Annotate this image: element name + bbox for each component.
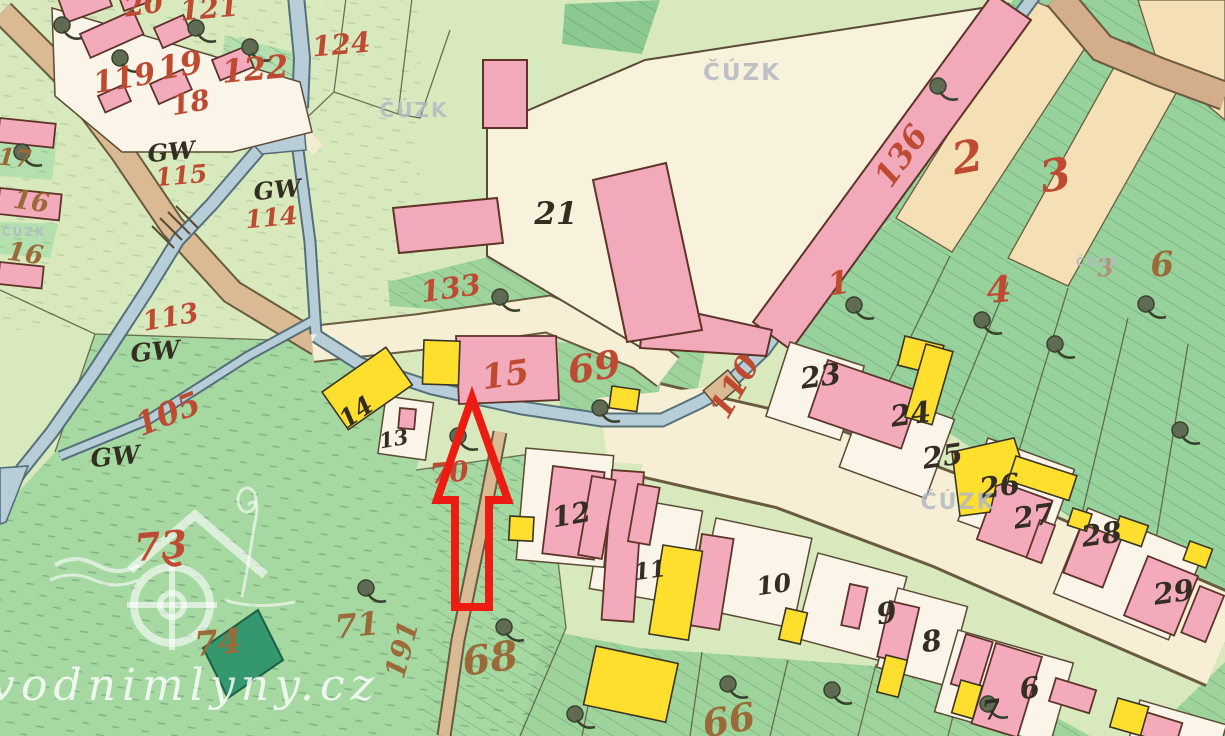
farm-building (393, 198, 503, 253)
parcel-label: 68 (459, 631, 521, 685)
parcel-label: 12 (549, 495, 593, 534)
cuzk-watermark: ČÚZK (703, 58, 781, 86)
parcel-label: 6 (1149, 244, 1176, 286)
cadastral-map[interactable]: 201211911912212418171616GW115GW114113GW1… (0, 0, 1225, 736)
parcel-label: 11 (632, 555, 667, 586)
parcel-label: 13 (377, 424, 410, 454)
parcel-label: GW (252, 173, 304, 206)
parcel-label: 69 (565, 341, 624, 393)
parcel-label: 21 (533, 196, 577, 232)
building-wooden (609, 386, 640, 412)
parcel-label: GW (129, 335, 184, 368)
cuzk-watermark: ČÚZK (2, 224, 47, 239)
farm-building (483, 60, 527, 128)
parcel-label: 115 (154, 159, 209, 192)
parcel-label: 16 (5, 237, 45, 272)
parcel-label: 15 (479, 352, 531, 398)
vodnimlyny-watermark: vodnimlyny.cz (0, 660, 380, 711)
cuzk-watermark: ČÚZK (380, 98, 449, 122)
parcel-label: 4 (985, 268, 1014, 312)
parcel-label: 10 (755, 568, 794, 602)
parcel-label: 29 (1150, 572, 1196, 611)
parcel-label: 23 (797, 356, 843, 395)
parcel-label: 124 (311, 26, 372, 64)
parcel-label: 18 (168, 83, 212, 122)
parcel-label: 19 (155, 43, 205, 88)
parcel-label: 28 (1078, 514, 1124, 553)
parcel-label: 25 (919, 436, 965, 475)
parcel-label: 16 (11, 185, 51, 220)
parcel-label: 71 (333, 604, 381, 646)
building-wooden (509, 516, 534, 541)
building-wooden (422, 340, 460, 385)
parcel-label: 74 (193, 621, 244, 665)
parcel-label: 122 (220, 47, 290, 91)
parcel-label: 17 (0, 142, 33, 174)
parcel-label: 114 (244, 201, 299, 234)
cuzk-watermark: ČÚZK (920, 489, 995, 515)
parcel-label: 27 (1010, 496, 1056, 535)
cuzk-watermark: ČÚZK (1076, 254, 1121, 269)
parcel-label: 24 (887, 394, 933, 433)
parcel-label: GW (89, 440, 144, 473)
